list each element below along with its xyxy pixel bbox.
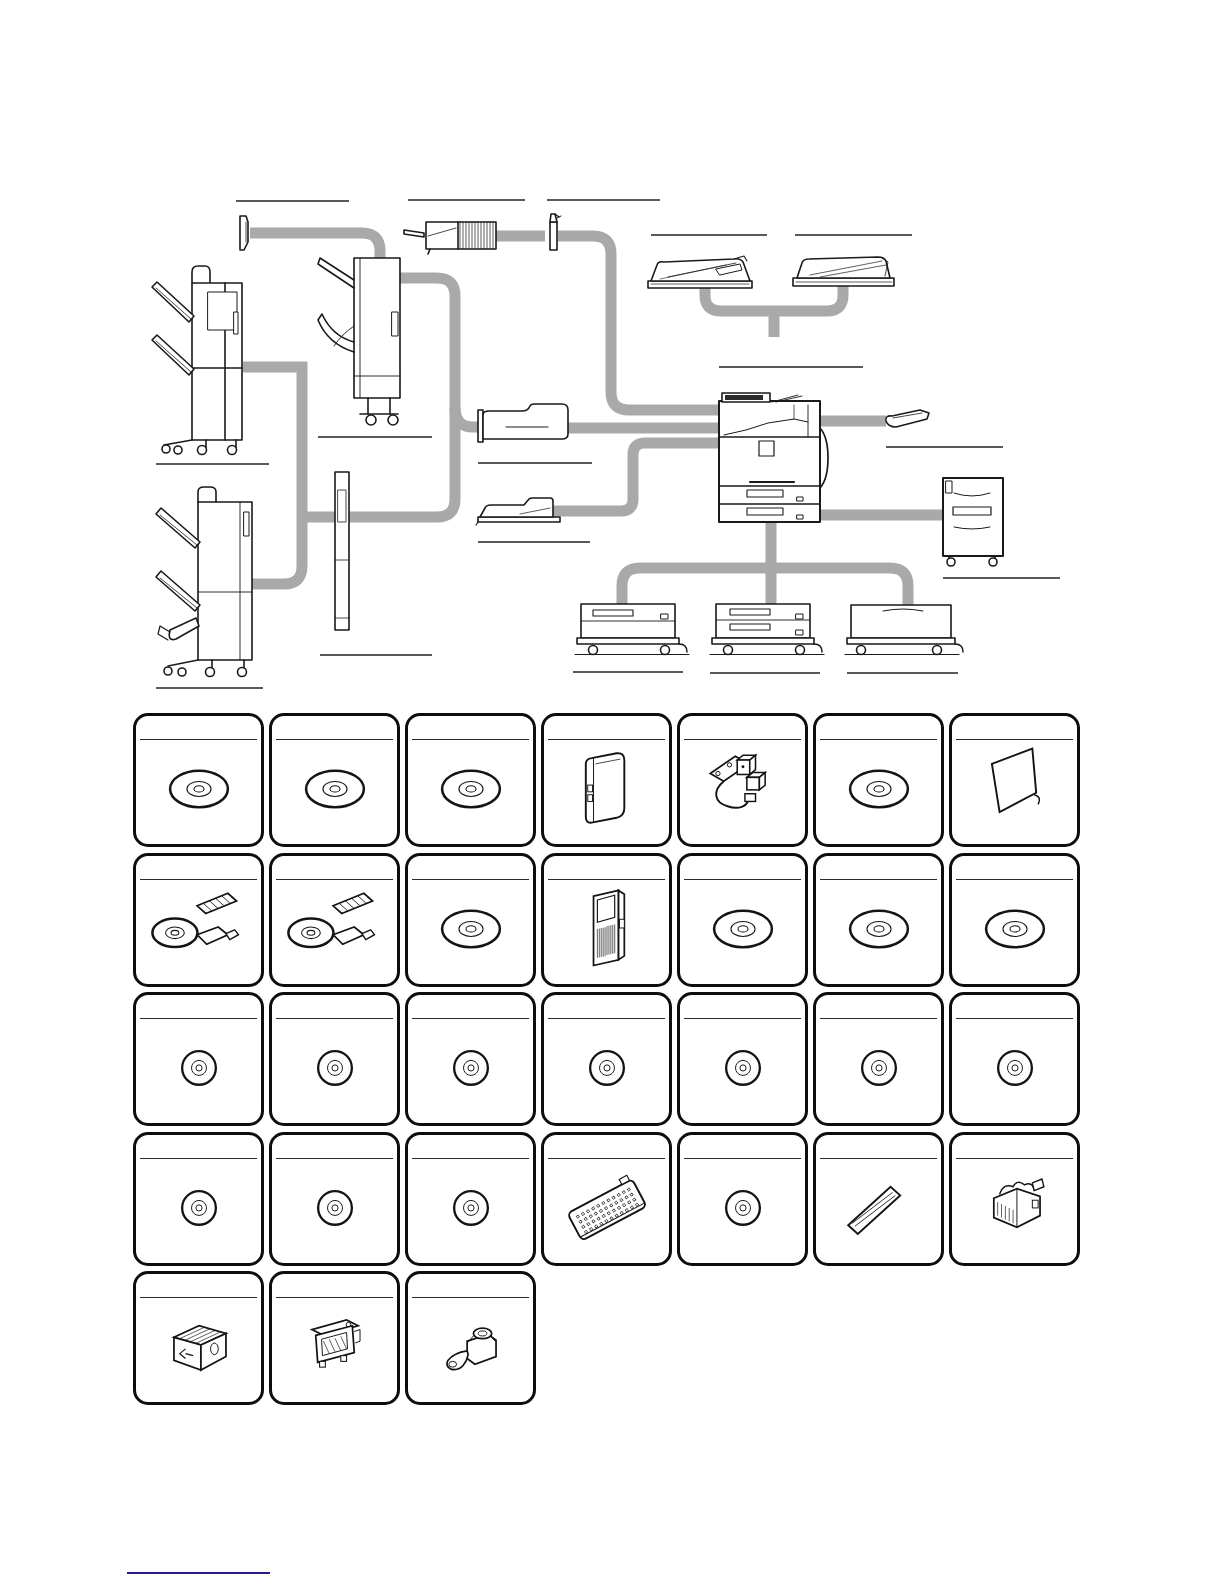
option-card-software-cd: [405, 1132, 536, 1266]
card-title-rule: [820, 1158, 937, 1159]
card-title-rule: [684, 739, 801, 740]
option-card-stamp-glass-plate: [813, 1132, 944, 1266]
footnote-rule: [127, 1572, 270, 1574]
cd-circle-icon: [139, 1154, 259, 1258]
option-card-software-cd: [269, 1132, 400, 1266]
scanner-lamp-unit: [404, 222, 496, 254]
cd-circle-icon: [275, 1014, 395, 1118]
option-card-software-cd: [405, 853, 536, 987]
card-title-rule: [140, 1297, 257, 1298]
option-card-software-cd: [677, 1132, 808, 1266]
cd-circle-icon: [411, 1014, 531, 1118]
exit-tray: [886, 410, 929, 427]
exit-tray-cabinet: [476, 498, 560, 525]
card-title-rule: [548, 1158, 665, 1159]
card-title-rule: [820, 739, 937, 740]
card-title-rule: [956, 1018, 1073, 1019]
inner-finisher: [318, 258, 400, 425]
option-card-separator-panel: [949, 713, 1080, 847]
option-card-software-cd: [269, 992, 400, 1126]
option-card-wireless-lan-adapter: [541, 713, 672, 847]
card-title-rule: [684, 1158, 801, 1159]
card-title-rule: [276, 739, 393, 740]
staple-unit-icon: [275, 1293, 395, 1397]
job-separator: [240, 216, 248, 250]
high-cabinet: [943, 478, 1003, 566]
card-title-rule: [276, 1018, 393, 1019]
document-feeder: [648, 256, 752, 288]
option-card-software-cd: [813, 713, 944, 847]
card-title-rule: [140, 739, 257, 740]
stamp-glass-icon: [819, 1154, 939, 1258]
cd-ellipse-icon: [955, 875, 1075, 979]
card-title-rule: [684, 1018, 801, 1019]
license-kit-icon: [139, 875, 259, 979]
low-stand: [845, 605, 963, 655]
card-title-rule: [412, 879, 529, 880]
cd-circle-icon: [683, 1014, 803, 1118]
option-card-software-cd: [541, 992, 672, 1126]
cd-circle-icon: [411, 1154, 531, 1258]
cd-circle-icon: [819, 1014, 939, 1118]
cd-circle-icon: [275, 1154, 395, 1258]
option-card-staple-cartridge-box: [133, 1271, 264, 1405]
card-title-rule: [820, 879, 937, 880]
expansion-board-icon: [547, 875, 667, 979]
card-title-rule: [548, 879, 665, 880]
keyboard-icon: [547, 1154, 667, 1258]
card-title-rule: [276, 1158, 393, 1159]
cd-ellipse-icon: [275, 735, 395, 839]
cd-ellipse-icon: [411, 875, 531, 979]
option-card-software-cd: [677, 853, 808, 987]
card-title-rule: [140, 1158, 257, 1159]
option-card-software-cd: [405, 713, 536, 847]
card-title-rule: [412, 1018, 529, 1019]
cd-ellipse-icon: [819, 735, 939, 839]
option-card-software-cd: [949, 992, 1080, 1126]
cd-circle-icon: [547, 1014, 667, 1118]
card-title-rule: [412, 739, 529, 740]
option-card-fax-expansion-board: [541, 853, 672, 987]
option-card-software-cd: [813, 992, 944, 1126]
saddle-stitch-finisher: [156, 487, 252, 677]
card-title-rule: [276, 879, 393, 880]
one-drawer-stand: [575, 604, 689, 655]
option-card-software-cd: [677, 992, 808, 1126]
card-title-rule: [956, 1158, 1073, 1159]
cd-circle-icon: [955, 1014, 1075, 1118]
finisher: [152, 266, 242, 455]
option-card-stamp-cartridge: [405, 1271, 536, 1405]
card-title-rule: [276, 1297, 393, 1298]
card-title-rule: [956, 879, 1073, 880]
option-card-software-cd: [133, 992, 264, 1126]
card-title-rule: [684, 879, 801, 880]
stamp-cartridge-icon: [411, 1293, 531, 1397]
option-card-software-cd: [813, 853, 944, 987]
wireless-adapter-icon: [547, 735, 667, 839]
card-title-rule: [820, 1018, 937, 1019]
option-card-software-cd: [949, 853, 1080, 987]
option-card-software-cd: [269, 713, 400, 847]
staple-cartridge-box-icon: [139, 1293, 259, 1397]
main-unit: [719, 393, 828, 522]
document-cover: [793, 257, 894, 286]
card-title-rule: [956, 739, 1073, 740]
cd-circle-icon: [139, 1014, 259, 1118]
punch-module: [335, 472, 349, 630]
option-card-staple-cartridge-set: [949, 1132, 1080, 1266]
cd-ellipse-icon: [139, 735, 259, 839]
option-card-connection-cable-kit: [677, 713, 808, 847]
card-title-rule: [412, 1158, 529, 1159]
cd-ellipse-icon: [819, 875, 939, 979]
manual-page: [0, 0, 1224, 1584]
option-card-software-cd: [133, 713, 264, 847]
card-title-rule: [548, 739, 665, 740]
cable-bracket-icon: [683, 735, 803, 839]
staple-cartridges-icon: [955, 1154, 1075, 1258]
cd-ellipse-icon: [411, 735, 531, 839]
option-card-software-cd: [405, 992, 536, 1126]
cd-circle-icon: [683, 1154, 803, 1258]
option-card-license-kit-cd-usb: [269, 853, 400, 987]
license-kit-icon: [275, 875, 395, 979]
card-title-rule: [548, 1018, 665, 1019]
option-card-keyboard: [541, 1132, 672, 1266]
option-card-staple-unit: [269, 1271, 400, 1405]
options-connection-diagram: [0, 0, 1224, 710]
option-card-license-kit-cd-usb: [133, 853, 264, 987]
option-card-software-cd: [133, 1132, 264, 1266]
card-title-rule: [140, 1018, 257, 1019]
card-title-rule: [412, 1297, 529, 1298]
two-drawer-stand: [710, 604, 824, 655]
paper-pass-unit: [478, 404, 568, 442]
cd-ellipse-icon: [683, 875, 803, 979]
card-title-rule: [140, 879, 257, 880]
separator-panel-icon: [955, 735, 1075, 839]
